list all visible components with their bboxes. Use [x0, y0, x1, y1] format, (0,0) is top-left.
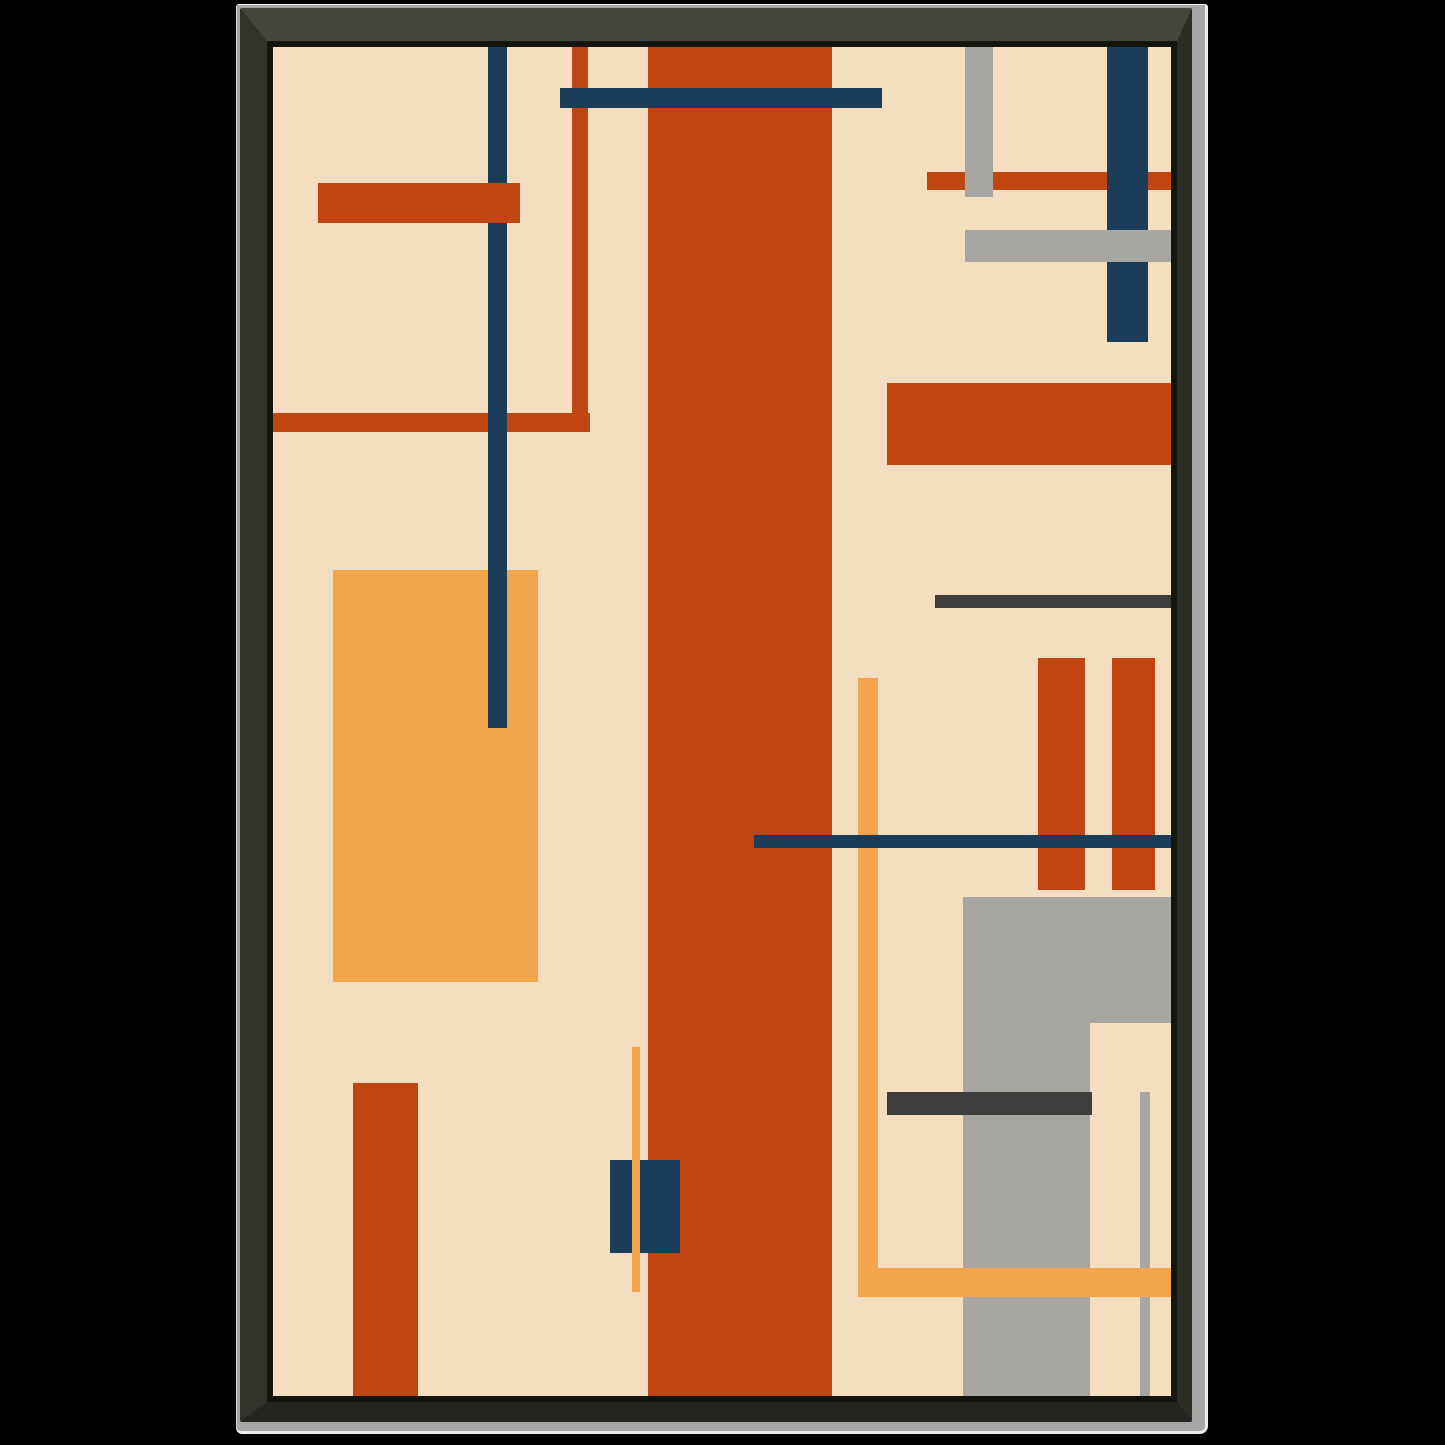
gray-block-column — [963, 897, 1090, 1396]
amber-vline-center — [632, 1047, 640, 1292]
gray-hbar-topright — [965, 230, 1171, 262]
amber-vline-right — [858, 678, 878, 1297]
gray-vbar-topright — [965, 47, 993, 197]
red-bar-right-a — [1038, 658, 1085, 890]
navy-vbar-topright — [1107, 47, 1148, 342]
gray-thin-vline — [1140, 1092, 1150, 1396]
charcoal-bar-bottom — [887, 1092, 1092, 1115]
navy-square-bottom — [610, 1160, 680, 1253]
red-bar-right-b — [1112, 658, 1155, 890]
navy-hline-mid — [754, 835, 1171, 848]
amber-hline-bottom — [858, 1268, 1171, 1297]
orange-bar-topleft — [318, 183, 520, 223]
red-rect-bottomleft — [353, 1083, 418, 1396]
navy-vline-left — [488, 47, 507, 728]
product-backdrop — [0, 0, 1445, 1445]
poster-frame — [240, 8, 1192, 1422]
red-rect-right — [887, 383, 1171, 465]
navy-hbar-top — [560, 88, 882, 108]
charcoal-line-right — [935, 595, 1171, 608]
orange-l-horizontal-line — [273, 413, 590, 432]
amber-rectangle-left — [333, 570, 538, 982]
art-canvas — [267, 41, 1177, 1402]
